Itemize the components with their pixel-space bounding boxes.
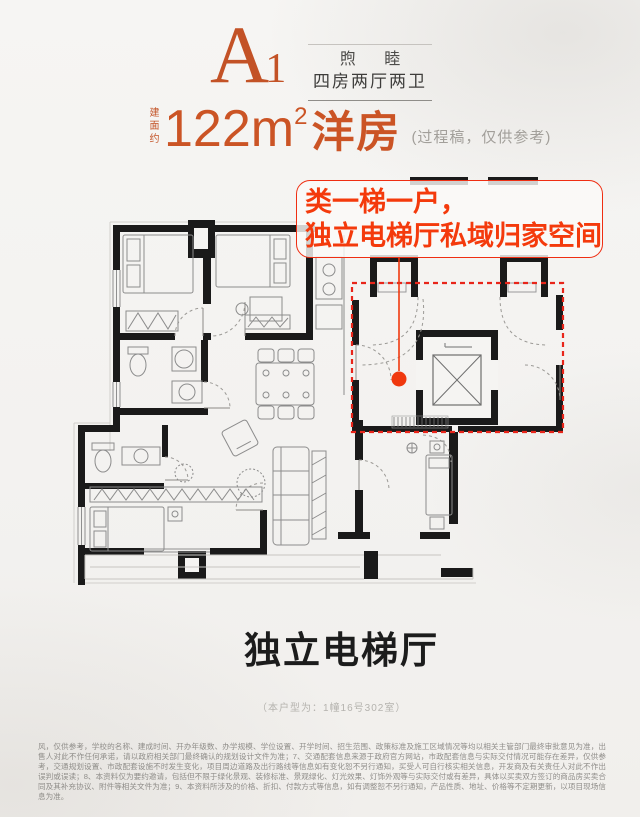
series-block: 煦 睦 四房两厅两卫 bbox=[308, 44, 432, 101]
disclaimer-text: 风，仅供参考，学校的名称、建成时间、开办年级数、办学规模、学位设置、开学时间、招… bbox=[38, 742, 606, 802]
door-leaves bbox=[165, 302, 560, 510]
callout-line1: 类一梯一户， bbox=[305, 185, 594, 219]
bottom-headline: 独立电梯厅 bbox=[244, 620, 439, 674]
callout-pointer-dot bbox=[392, 372, 407, 387]
area-size: 122m2 bbox=[164, 103, 307, 155]
area-type: 洋房 bbox=[311, 112, 401, 155]
unit-code: A1 bbox=[210, 14, 286, 96]
callout-line2: 独立电梯厅私域归家空间 bbox=[305, 219, 594, 253]
page: A1 煦 睦 四房两厅两卫 建面约 122m2 洋房 (过程稿，仅供参考) 类一… bbox=[0, 0, 640, 817]
unit-code-letter: A bbox=[210, 9, 269, 100]
area-size-value: 122m bbox=[164, 100, 294, 158]
area-prefix: 建面约 bbox=[145, 107, 160, 147]
unit-caption: （本户型为：1幢16号302室） bbox=[257, 699, 406, 714]
series-name: 煦 睦 bbox=[308, 50, 432, 71]
layout-desc: 四房两厅两卫 bbox=[308, 71, 432, 94]
area-note: (过程稿，仅供参考) bbox=[411, 126, 551, 147]
callout-box: 类一梯一户， 独立电梯厅私域归家空间 bbox=[296, 180, 603, 258]
stub-mats bbox=[378, 283, 536, 292]
unit-code-number: 1 bbox=[265, 46, 286, 92]
balcony bbox=[85, 555, 473, 579]
area-size-sup: 2 bbox=[294, 103, 307, 130]
door-arcs bbox=[165, 297, 560, 510]
area-row: 建面约 122m2 洋房 (过程稿，仅供参考) bbox=[145, 103, 551, 155]
